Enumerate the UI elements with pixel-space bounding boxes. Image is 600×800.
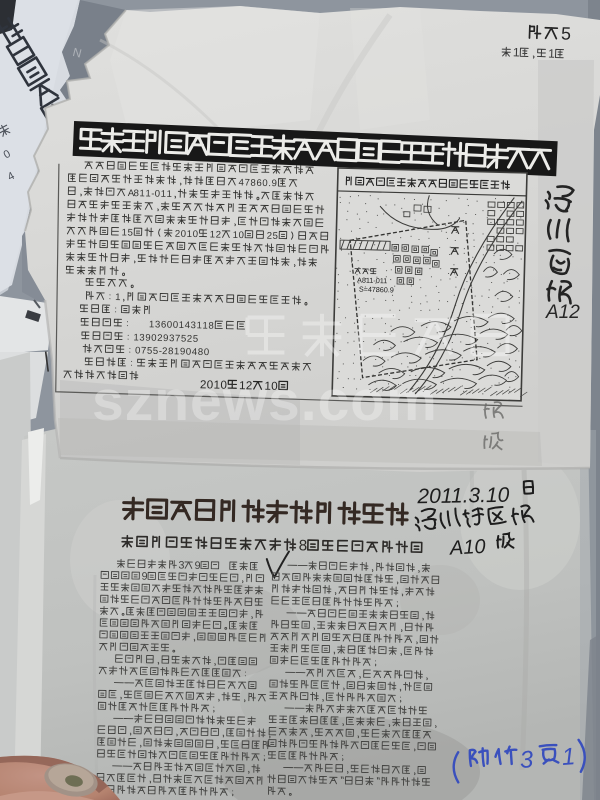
svg-text:S=47860.9: S=47860.9 xyxy=(359,285,394,295)
svg-text:7: 7 xyxy=(244,178,250,189)
svg-text:0: 0 xyxy=(155,189,161,200)
svg-text:7: 7 xyxy=(141,346,147,357)
svg-text:2: 2 xyxy=(157,333,163,344)
svg-text:9: 9 xyxy=(163,333,169,344)
svg-text:0: 0 xyxy=(186,347,192,358)
svg-text:9: 9 xyxy=(180,346,186,357)
svg-text:2011.3.10: 2011.3.10 xyxy=(416,484,510,509)
svg-text:A12: A12 xyxy=(545,302,580,323)
svg-text:5: 5 xyxy=(193,334,199,345)
svg-text:2: 2 xyxy=(266,231,272,242)
svg-text:1: 1 xyxy=(166,189,172,200)
svg-text:6: 6 xyxy=(161,320,167,331)
svg-text:2: 2 xyxy=(175,229,181,240)
svg-text:5: 5 xyxy=(127,228,133,239)
svg-text:1: 1 xyxy=(210,229,216,240)
svg-text:3: 3 xyxy=(155,319,161,330)
svg-text:3: 3 xyxy=(139,333,145,344)
svg-text:1: 1 xyxy=(196,320,202,331)
svg-text:0: 0 xyxy=(204,347,210,358)
svg-text:5: 5 xyxy=(181,333,187,344)
svg-text:5: 5 xyxy=(272,231,278,242)
svg-text:1: 1 xyxy=(133,332,139,343)
svg-text:5: 5 xyxy=(561,23,572,43)
svg-text:0: 0 xyxy=(167,320,173,331)
svg-text:9: 9 xyxy=(145,333,151,344)
svg-text:1: 1 xyxy=(202,320,208,331)
svg-text:0: 0 xyxy=(238,230,244,241)
svg-text:1: 1 xyxy=(513,45,520,59)
svg-text:A10: A10 xyxy=(448,536,486,560)
svg-text:6: 6 xyxy=(256,178,262,189)
svg-text:8: 8 xyxy=(133,188,139,199)
svg-text:8: 8 xyxy=(208,321,214,332)
svg-text:5: 5 xyxy=(147,346,153,357)
svg-text:0: 0 xyxy=(181,229,187,240)
svg-text:1: 1 xyxy=(561,743,576,771)
svg-text:8: 8 xyxy=(198,347,204,358)
svg-text:8: 8 xyxy=(299,537,308,554)
svg-text:3: 3 xyxy=(178,559,184,571)
svg-text:3: 3 xyxy=(190,320,196,331)
svg-text:9: 9 xyxy=(271,178,277,189)
svg-text:sznews.com: sznews.com xyxy=(92,369,438,433)
svg-text:2: 2 xyxy=(162,346,168,357)
svg-text:3: 3 xyxy=(519,746,535,774)
svg-text:1: 1 xyxy=(121,227,127,238)
svg-text:1: 1 xyxy=(187,229,193,240)
svg-text:9: 9 xyxy=(141,571,147,583)
svg-text:0: 0 xyxy=(173,320,179,331)
svg-text:8: 8 xyxy=(168,346,174,357)
svg-text:0: 0 xyxy=(151,333,157,344)
svg-text:1: 1 xyxy=(548,46,555,60)
svg-text:1: 1 xyxy=(179,320,185,331)
svg-text:8: 8 xyxy=(250,178,256,189)
svg-text:1: 1 xyxy=(145,188,151,199)
svg-text:7: 7 xyxy=(175,333,181,344)
svg-text:2: 2 xyxy=(216,230,222,241)
svg-text:0: 0 xyxy=(262,178,268,189)
svg-text:2: 2 xyxy=(187,334,193,345)
svg-text:5: 5 xyxy=(153,346,159,357)
svg-text:3: 3 xyxy=(169,333,175,344)
svg-text:9: 9 xyxy=(194,560,200,572)
svg-text:1: 1 xyxy=(174,346,180,357)
svg-text:1: 1 xyxy=(161,189,167,200)
svg-text:1: 1 xyxy=(115,292,121,303)
svg-text:1: 1 xyxy=(139,188,145,199)
svg-text:0: 0 xyxy=(135,345,141,356)
svg-text:1: 1 xyxy=(149,319,155,330)
svg-text:1: 1 xyxy=(233,230,239,241)
svg-text:0: 0 xyxy=(193,229,199,240)
